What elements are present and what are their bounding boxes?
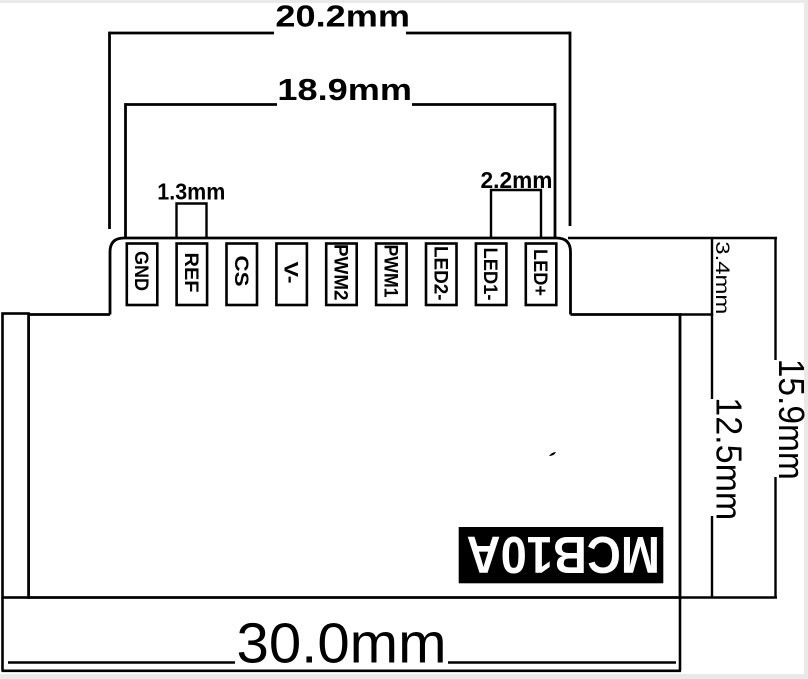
svg-text:LED1-: LED1- [479, 248, 500, 301]
svg-text:PWM1: PWM1 [379, 245, 400, 298]
svg-text:REF: REF [180, 253, 201, 293]
svg-text:3.4mm: 3.4mm [711, 241, 732, 314]
svg-text:LED2-: LED2- [429, 246, 450, 301]
svg-text:LED+: LED+ [529, 249, 550, 296]
svg-text:12.5mm: 12.5mm [709, 397, 750, 520]
svg-text:2.2mm: 2.2mm [481, 167, 553, 193]
svg-text:PWM2: PWM2 [330, 244, 351, 301]
svg-text:V-: V- [280, 262, 301, 284]
svg-text:1.3mm: 1.3mm [157, 179, 225, 205]
svg-text:18.9mm: 18.9mm [277, 72, 412, 107]
svg-text:MCB10A: MCB10A [467, 526, 661, 584]
svg-text:CS: CS [230, 256, 251, 287]
svg-text:20.2mm: 20.2mm [275, 0, 410, 34]
svg-text:15.9mm: 15.9mm [771, 359, 808, 480]
svg-text:GND: GND [130, 251, 151, 291]
svg-text:30.0mm: 30.0mm [237, 612, 447, 676]
